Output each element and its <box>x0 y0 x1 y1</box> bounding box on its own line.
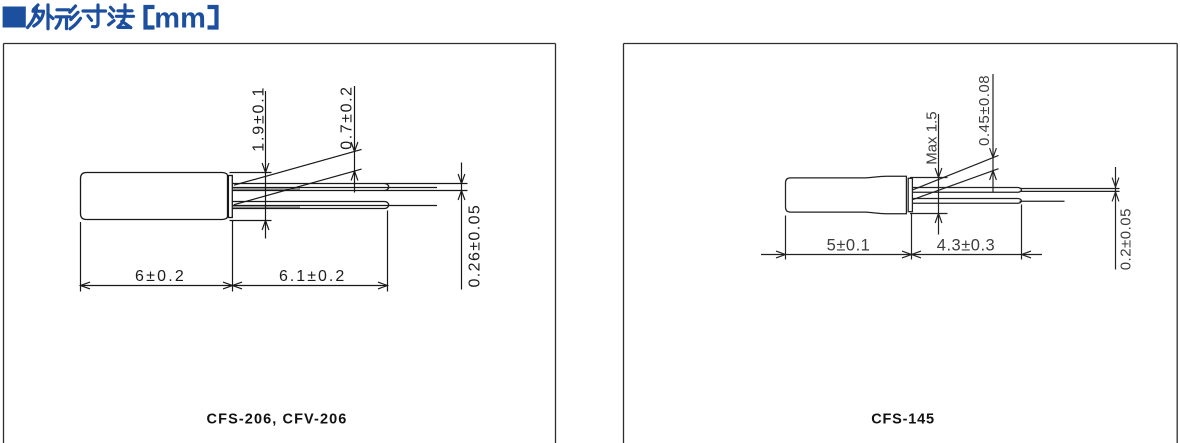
svg-text:1.9±0.1: 1.9±0.1 <box>251 86 268 152</box>
svg-text:mm: mm <box>154 2 206 34</box>
svg-text:0.7±0.2: 0.7±0.2 <box>338 85 355 149</box>
svg-text:5±0.1: 5±0.1 <box>827 237 871 255</box>
svg-text:0.26±0.05: 0.26±0.05 <box>467 204 484 288</box>
svg-text:6.1±0.2: 6.1±0.2 <box>279 268 346 285</box>
svg-text:0.45±0.08: 0.45±0.08 <box>976 75 993 146</box>
svg-text:4.3±0.3: 4.3±0.3 <box>937 237 995 255</box>
svg-text:0.2±0.05: 0.2±0.05 <box>1118 208 1135 270</box>
svg-text:CFS-145: CFS-145 <box>871 412 935 428</box>
svg-text:6±0.2: 6±0.2 <box>135 268 186 285</box>
svg-text:CFS-206, CFV-206: CFS-206, CFV-206 <box>207 412 348 428</box>
svg-text:Max 1.5: Max 1.5 <box>923 111 940 164</box>
